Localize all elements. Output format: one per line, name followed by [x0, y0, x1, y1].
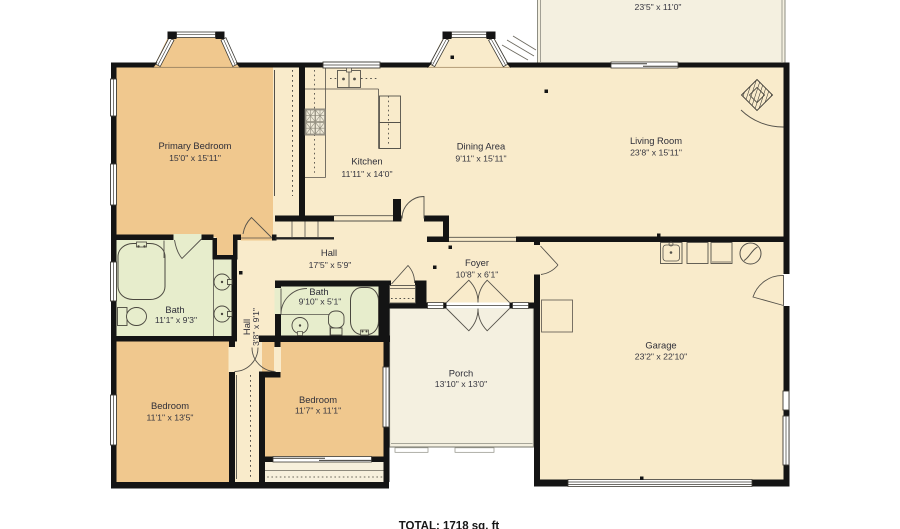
svg-text:13'10" x 13'0": 13'10" x 13'0" — [435, 379, 487, 389]
svg-text:Garage: Garage — [645, 340, 676, 351]
svg-text:11'1" x 13'5": 11'1" x 13'5" — [147, 413, 194, 423]
svg-text:9'11" x 15'11": 9'11" x 15'11" — [455, 154, 506, 164]
svg-text:Porch: Porch — [449, 368, 474, 379]
svg-text:Living Room: Living Room — [630, 135, 682, 146]
svg-text:10'8" x 6'1": 10'8" x 6'1" — [456, 270, 499, 280]
svg-text:23'8" x 15'11": 23'8" x 15'11" — [630, 148, 682, 158]
svg-text:9'10" x 5'1": 9'10" x 5'1" — [299, 297, 342, 307]
svg-text:Foyer: Foyer — [465, 257, 489, 268]
svg-text:Bath: Bath — [165, 304, 184, 315]
svg-text:Bath: Bath — [309, 286, 328, 297]
svg-text:17'5" x 5'9": 17'5" x 5'9" — [309, 260, 352, 270]
svg-text:3'8" x 9'1": 3'8" x 9'1" — [251, 308, 261, 346]
svg-text:15'0" x 15'11": 15'0" x 15'11" — [169, 153, 221, 163]
svg-text:11'11" x 14'0": 11'11" x 14'0" — [341, 169, 392, 179]
svg-text:Bedroom: Bedroom — [299, 394, 337, 405]
svg-text:Dining Area: Dining Area — [457, 141, 506, 152]
svg-text:Kitchen: Kitchen — [351, 156, 382, 167]
svg-text:TOTAL: 1718 sq. ft: TOTAL: 1718 sq. ft — [399, 521, 500, 529]
svg-text:23'2" x 22'10": 23'2" x 22'10" — [635, 352, 687, 362]
svg-text:Bedroom: Bedroom — [151, 400, 189, 411]
svg-text:11'7" x 11'1": 11'7" x 11'1" — [295, 406, 341, 416]
svg-text:Hall: Hall — [321, 247, 337, 258]
svg-text:11'1" x 9'3": 11'1" x 9'3" — [155, 315, 197, 325]
svg-text:Primary Bedroom: Primary Bedroom — [159, 140, 232, 151]
svg-text:23'5" x 11'0": 23'5" x 11'0" — [635, 2, 682, 12]
